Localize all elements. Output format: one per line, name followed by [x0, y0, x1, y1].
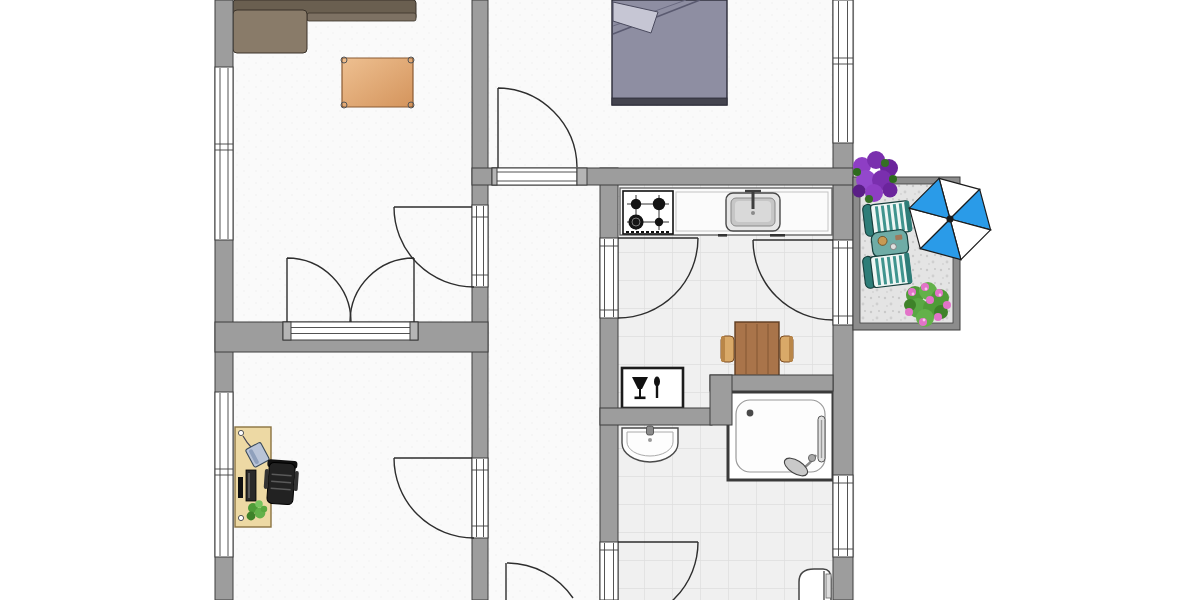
opening-kitchen [600, 238, 618, 318]
dining-plaque [622, 368, 683, 408]
window-living-room [215, 67, 233, 240]
drain [751, 211, 755, 215]
wall-bathroom-connector [710, 375, 732, 425]
chair-back [721, 336, 725, 362]
corner-sofa-seat-strip [307, 13, 416, 21]
bed-footboard [612, 98, 727, 105]
floor-plan [0, 0, 1200, 600]
toilet-cistern [826, 574, 831, 598]
shower-head-joint [808, 454, 815, 461]
desk-grommet [238, 430, 243, 435]
lounge-chair-lower [862, 251, 913, 288]
basin-drain [648, 438, 652, 442]
parasol-pole [947, 216, 953, 222]
area-rug [341, 57, 414, 108]
keyboard [238, 477, 243, 498]
table-item [895, 234, 903, 240]
shower-cabin [728, 392, 833, 480]
monitor [246, 470, 256, 501]
toilet [799, 569, 831, 600]
bedroom [612, 0, 727, 105]
window-bathroom [833, 475, 853, 557]
floors [215, 0, 855, 600]
wine-glass-base [635, 397, 646, 400]
shower-drain [747, 410, 754, 417]
opening-double-door [283, 322, 418, 340]
opening-living-room [472, 205, 488, 287]
table-item [890, 243, 897, 250]
burner [631, 199, 641, 209]
wall-hallway-right [600, 168, 618, 600]
burner [653, 198, 665, 210]
floor-hallway [488, 185, 600, 600]
window-bedroom [833, 0, 853, 143]
counter-mark [718, 234, 727, 237]
wine-glass-stem [639, 388, 641, 397]
wash-basin [622, 426, 678, 462]
burner [628, 214, 643, 229]
burner [655, 218, 663, 226]
fork-handle [656, 384, 658, 398]
purple-flower-bush [853, 151, 899, 203]
opening-balcony [833, 240, 853, 325]
basin-faucet [647, 426, 654, 435]
kitchen-sink [726, 190, 780, 231]
gas-stove [623, 191, 673, 234]
desk-grommet [238, 515, 243, 520]
chair-back [789, 336, 793, 362]
opening-bathroom [600, 542, 618, 600]
balcony [853, 151, 991, 330]
opening-bedroom [492, 168, 587, 185]
window-office [215, 392, 233, 557]
counter-mark [770, 234, 785, 237]
corner-sofa-chaise [233, 10, 307, 53]
wall-bathroom-top-left [600, 408, 712, 425]
opening-office [472, 458, 488, 538]
